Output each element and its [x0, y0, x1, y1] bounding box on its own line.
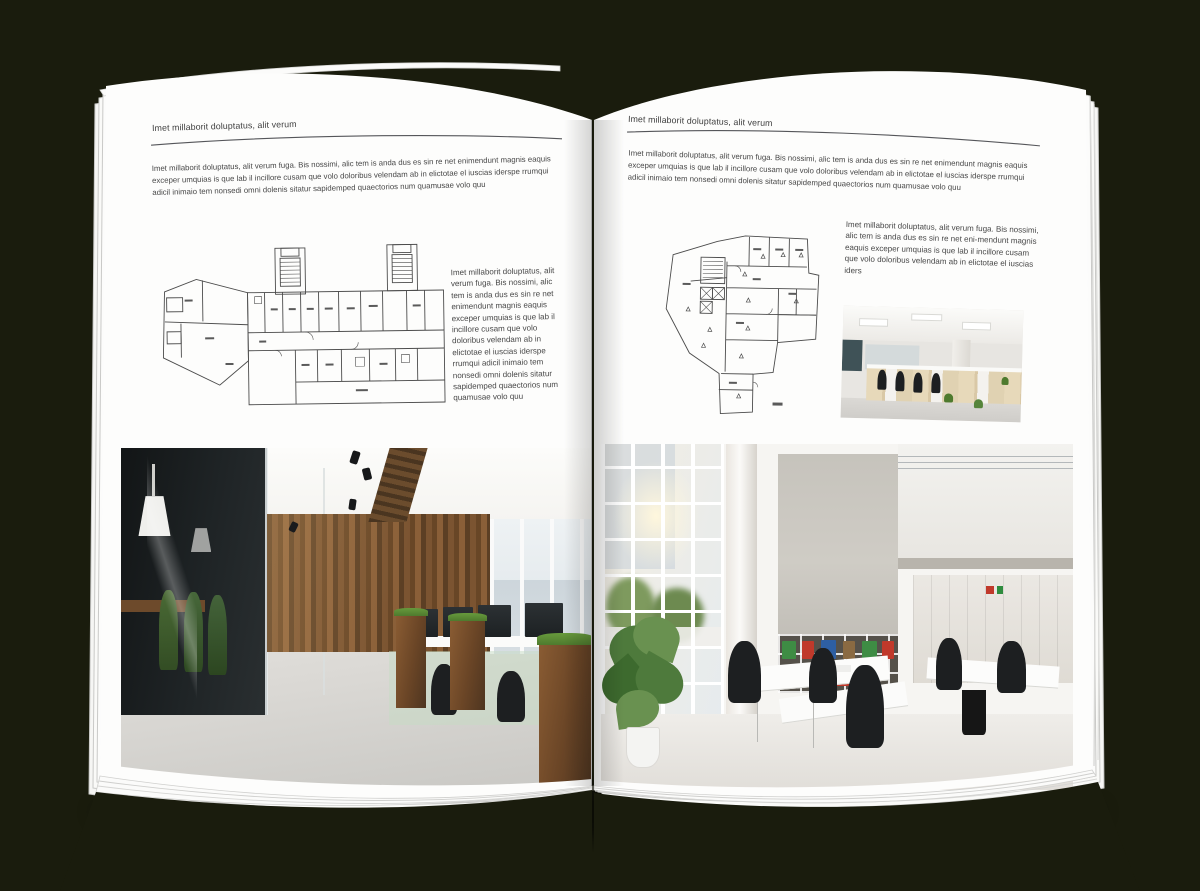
stair-tower [275, 248, 306, 294]
office-photo-right [601, 444, 1073, 790]
track-spotlight [348, 498, 356, 510]
stair-tower [387, 244, 418, 290]
left-page-intro: Imet millaborit doluptatus, alit verum f… [152, 153, 567, 199]
concrete-wall [778, 454, 898, 634]
left-page-header: Imet millaborit doluptatus, alit verum [152, 119, 297, 133]
plant-pot [626, 727, 660, 769]
book-shadow [93, 784, 1103, 840]
office-chair [931, 373, 941, 393]
page-edge-line [1090, 96, 1095, 766]
planter [450, 619, 485, 710]
shredder-bin [962, 690, 986, 735]
left-page-caption: Imet millaborit doluptatus, alit verum f… [451, 265, 570, 404]
planter [539, 641, 591, 786]
background-cover [594, 782, 1140, 891]
ceiling-light [962, 322, 991, 330]
office-chair [728, 641, 761, 703]
planter-grass [448, 613, 487, 621]
office-chair [497, 671, 525, 722]
dark-glass-panel [842, 339, 863, 371]
office-chair [913, 372, 923, 392]
downlight-glow [862, 454, 893, 494]
potted-plant [601, 617, 695, 769]
railing [898, 451, 1073, 469]
right-page-header: Imet millaborit doluptatus, alit verum [628, 114, 773, 128]
right-page-intro: Imet millaborit doluptatus, alit verum f… [628, 148, 1043, 197]
binders-wood [843, 641, 855, 659]
page-stack-top-sliver [100, 63, 560, 96]
floor-plan-right [654, 220, 837, 419]
office-chair [877, 369, 887, 389]
plan-markers [685, 251, 804, 399]
planter-grass [537, 633, 591, 645]
magazine-mockup-scene: Imet millaborit doluptatus, alit verum I… [0, 0, 1200, 891]
office-photo-left [121, 448, 591, 786]
planter-grass [394, 608, 428, 617]
office-photo-small [841, 306, 1024, 423]
page-edge-line [1094, 104, 1099, 760]
exit-sign-green [997, 586, 1003, 594]
right-header-rule [626, 125, 1042, 151]
planter [396, 614, 427, 709]
plan-label-specks [185, 296, 422, 393]
office-chair [895, 371, 905, 391]
office-chair [997, 641, 1025, 693]
downlight-glow [824, 454, 855, 494]
binders-green [782, 641, 796, 659]
mezzanine [898, 444, 1073, 560]
plant [944, 393, 953, 402]
glass-reflection [147, 448, 197, 715]
ceiling-light [859, 318, 888, 326]
office-chair [936, 638, 962, 690]
plan-label-specks [681, 247, 804, 406]
downlight-glow [785, 454, 816, 494]
monitor [525, 603, 563, 637]
office-chair [846, 665, 884, 748]
right-page-caption: Imet millaborit doluptatus, alit verum f… [844, 219, 1044, 282]
left-header-rule [150, 129, 564, 149]
mezzanine-underside [898, 558, 1073, 568]
meeting-room-glass-wall [121, 448, 267, 715]
page-edge-line [98, 786, 592, 804]
plant [1002, 377, 1009, 385]
background-cover [60, 790, 592, 891]
ceiling-light [912, 313, 943, 321]
office-chair [809, 648, 837, 703]
green-chair [208, 595, 227, 675]
plant [974, 399, 983, 408]
floor-plan-left [154, 230, 449, 424]
exit-sign-red [986, 586, 994, 594]
